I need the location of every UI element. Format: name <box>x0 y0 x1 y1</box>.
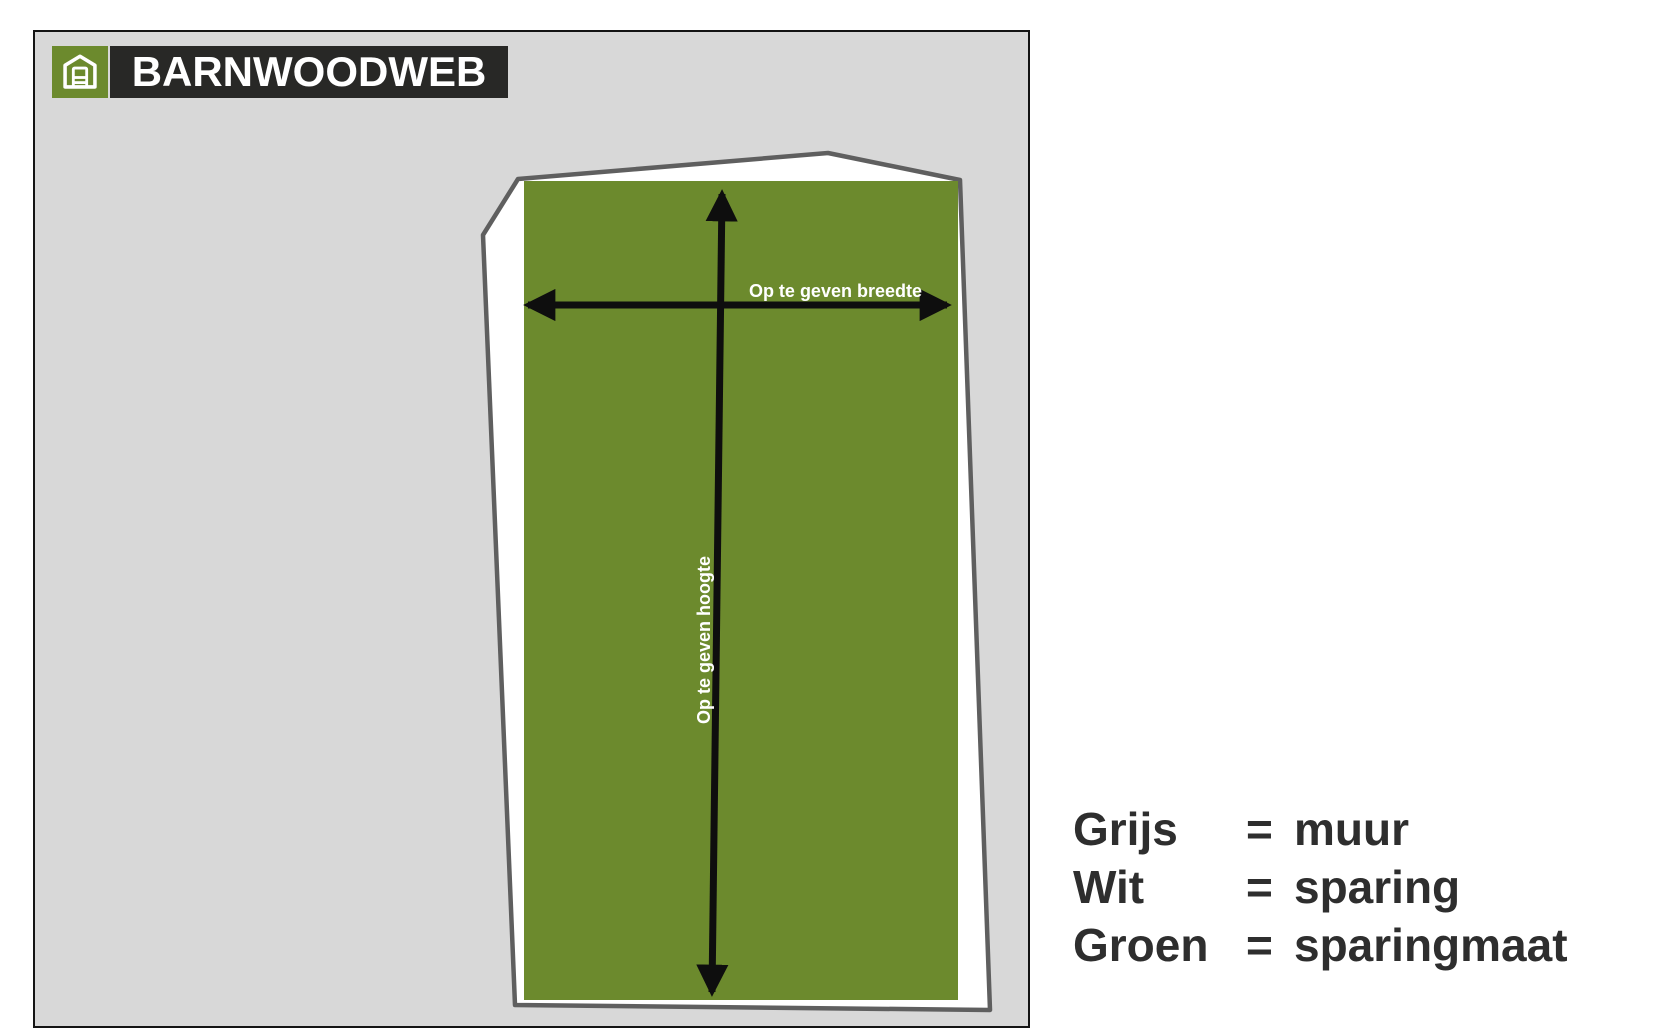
legend-label: Wit <box>1073 858 1246 916</box>
legend-equals: = <box>1246 916 1294 974</box>
legend-row-wit: Wit = sparing <box>1073 858 1568 916</box>
legend-equals: = <box>1246 858 1294 916</box>
barn-house-icon <box>52 46 108 98</box>
legend-value: muur <box>1294 800 1568 858</box>
sparing-diagram: Op te geven breedte Op te geven hoogte <box>35 32 1028 1026</box>
legend-row-grijs: Grijs = muur <box>1073 800 1568 858</box>
legend-value: sparing <box>1294 858 1568 916</box>
brand-wordmark: BARNWOODWEB <box>110 46 508 98</box>
legend: Grijs = muur Wit = sparing Groen = spari… <box>1073 800 1568 974</box>
legend-value: sparingmaat <box>1294 916 1568 974</box>
wall-panel: Op te geven breedte Op te geven hoogte B… <box>33 30 1030 1028</box>
width-arrow-label: Op te geven breedte <box>749 281 922 301</box>
legend-label: Grijs <box>1073 800 1246 858</box>
brand-logo: BARNWOODWEB <box>52 46 508 98</box>
legend-label: Groen <box>1073 916 1246 974</box>
legend-row-groen: Groen = sparingmaat <box>1073 916 1568 974</box>
page: Op te geven breedte Op te geven hoogte B… <box>0 0 1654 1033</box>
height-arrow-label: Op te geven hoogte <box>694 556 714 724</box>
legend-equals: = <box>1246 800 1294 858</box>
